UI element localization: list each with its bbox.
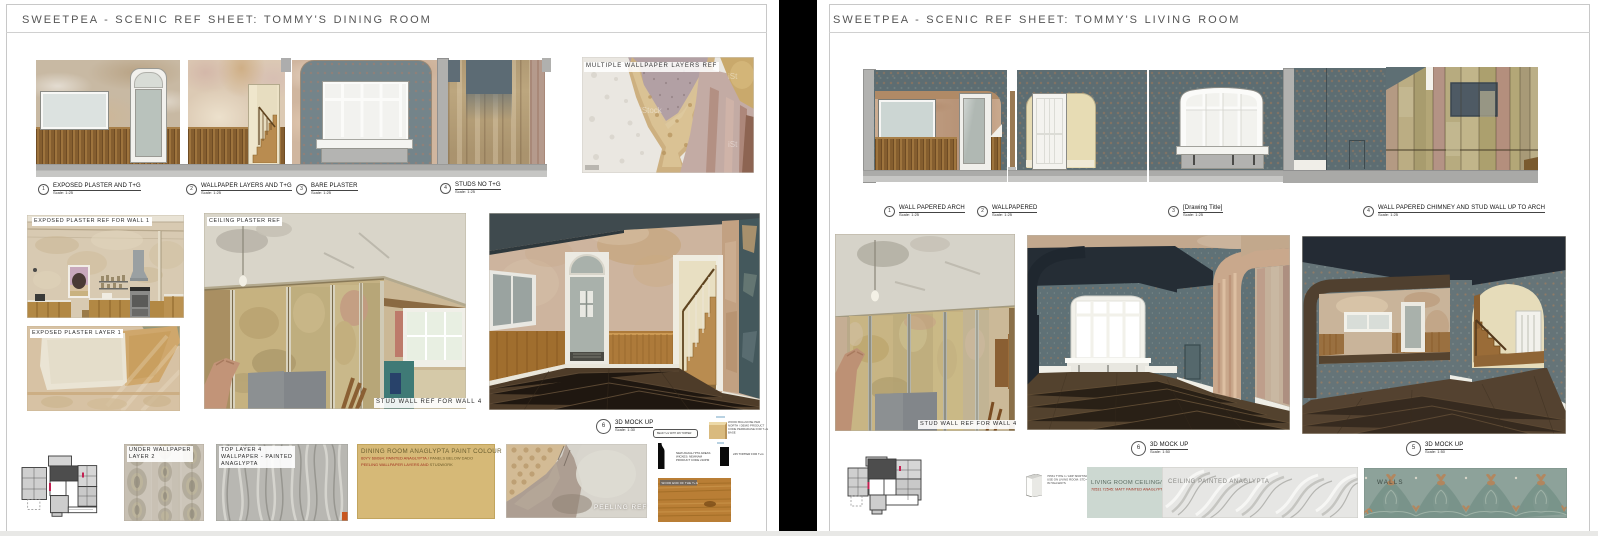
svg-text:iSt: iSt <box>728 72 738 81</box>
svg-text:iSt: iSt <box>728 140 738 149</box>
svg-text:WOOD END OF THE T+G: WOOD END OF THE T+G <box>662 481 699 485</box>
svg-text:iStock: iStock <box>640 106 663 115</box>
